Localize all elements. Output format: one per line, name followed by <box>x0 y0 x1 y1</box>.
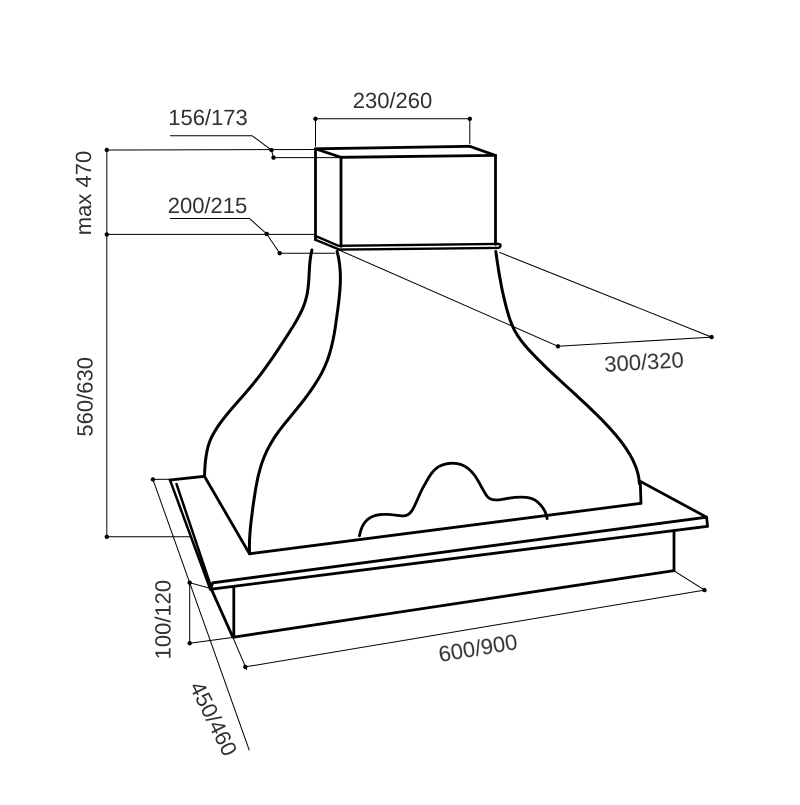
svg-text:156/173: 156/173 <box>168 105 248 130</box>
svg-text:560/630: 560/630 <box>73 357 98 437</box>
svg-text:300/320: 300/320 <box>604 347 685 377</box>
svg-text:100/120: 100/120 <box>150 580 175 660</box>
svg-text:200/215: 200/215 <box>168 193 248 218</box>
svg-text:max 470: max 470 <box>71 151 96 235</box>
svg-text:230/260: 230/260 <box>353 88 433 113</box>
